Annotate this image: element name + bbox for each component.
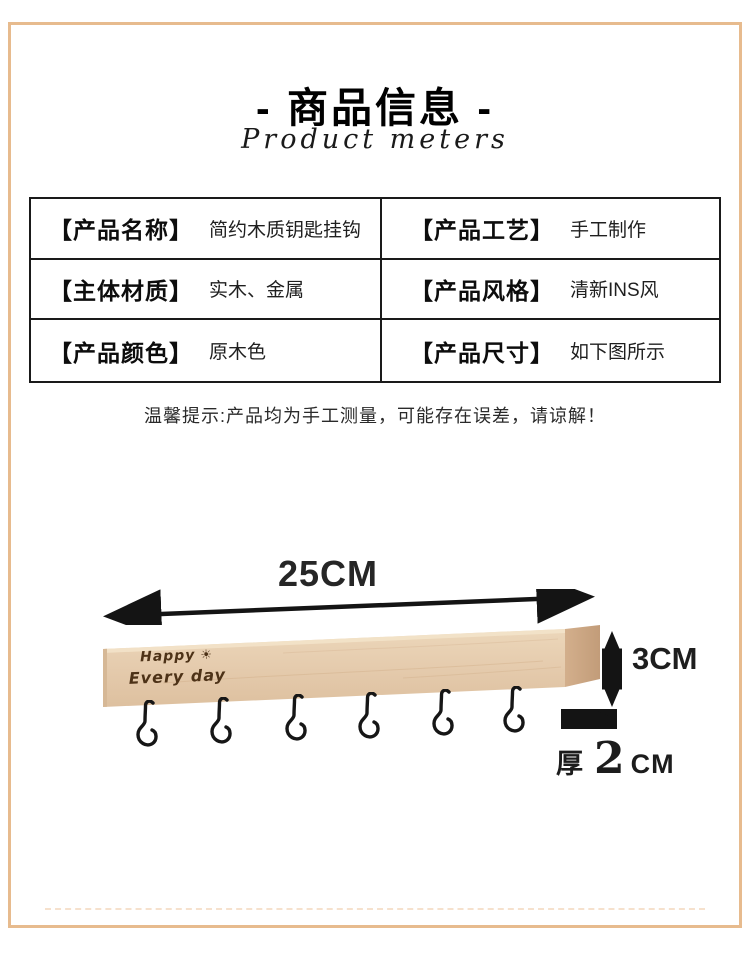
thickness-value: 2 bbox=[594, 737, 625, 781]
thickness-unit: CM bbox=[631, 749, 675, 780]
width-arrow-icon bbox=[100, 589, 598, 625]
hook-icon bbox=[207, 697, 237, 749]
table-cell-size: 【产品尺寸】 如下图所示 bbox=[382, 320, 719, 381]
product-info-table: 【产品名称】 简约木质钥匙挂钩 【产品工艺】 手工制作 【主体材质】 实木、金属… bbox=[29, 197, 721, 383]
warm-tip-note: 温馨提示:产品均为手工测量，可能存在误差，请谅解！ bbox=[0, 402, 750, 428]
cell-value: 如下图所示 bbox=[570, 337, 665, 364]
cell-label: 【产品尺寸】 bbox=[410, 334, 554, 368]
hook-icon bbox=[429, 689, 459, 741]
table-cell-product-name: 【产品名称】 简约木质钥匙挂钩 bbox=[31, 199, 382, 260]
cell-value: 清新INS风 bbox=[570, 275, 659, 302]
table-cell-style: 【产品风格】 清新INS风 bbox=[382, 260, 719, 321]
cell-label: 【主体材质】 bbox=[49, 272, 193, 306]
dimension-figure: 25CM bbox=[0, 545, 750, 825]
bottom-dashed-divider bbox=[45, 908, 705, 910]
hook-icon bbox=[133, 700, 163, 752]
thickness-arrow-icon bbox=[561, 709, 617, 729]
table-cell-material: 【主体材质】 实木、金属 bbox=[31, 260, 382, 321]
cell-value: 实木、金属 bbox=[209, 275, 304, 302]
hook-icon bbox=[500, 686, 530, 738]
height-arrow-icon bbox=[602, 629, 622, 709]
hook-icon bbox=[355, 692, 385, 744]
thickness-dimension-label: 厚 2 CM bbox=[556, 737, 675, 781]
product-info-page: { "page": { "frame_color": "#e7bb8e", "b… bbox=[0, 0, 750, 959]
engraving-line2: Every day bbox=[122, 664, 233, 690]
cell-label: 【产品风格】 bbox=[410, 272, 554, 306]
sun-icon: ☀ bbox=[200, 648, 213, 663]
board-engraving: Happy☀ Every day bbox=[121, 645, 232, 690]
page-subtitle: Product meters bbox=[0, 124, 750, 155]
cell-label: 【产品颜色】 bbox=[49, 334, 193, 368]
cell-label: 【产品工艺】 bbox=[410, 211, 554, 245]
cell-label: 【产品名称】 bbox=[49, 211, 193, 245]
height-dimension-label: 3CM bbox=[632, 641, 697, 677]
cell-value: 手工制作 bbox=[570, 215, 646, 242]
cell-value: 原木色 bbox=[209, 337, 266, 364]
engraving-happy-text: Happy bbox=[140, 647, 196, 665]
table-cell-color: 【产品颜色】 原木色 bbox=[31, 320, 382, 381]
cell-value: 简约木质钥匙挂钩 bbox=[209, 215, 361, 242]
hook-icon bbox=[282, 694, 312, 746]
table-cell-craft: 【产品工艺】 手工制作 bbox=[382, 199, 719, 260]
thickness-prefix: 厚 bbox=[556, 742, 584, 781]
